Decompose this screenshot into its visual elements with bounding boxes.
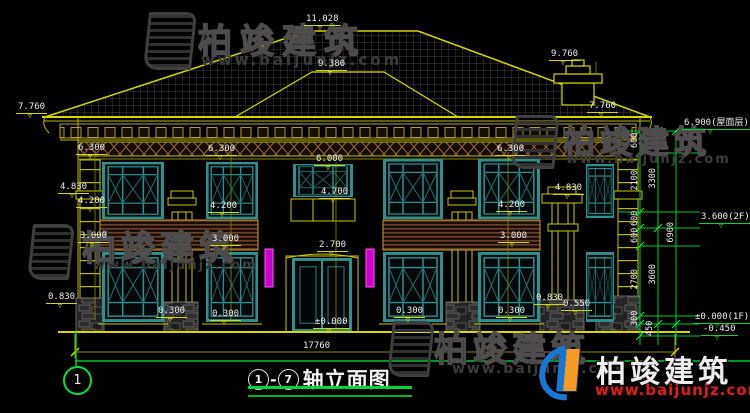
level-label: 4.830: [553, 184, 584, 195]
brand-logo-url: www.baijunjz.com: [595, 381, 750, 399]
overall-dim-label: 17760: [303, 342, 330, 351]
level-label: 6.000: [314, 155, 345, 166]
watermark-building-icon: [143, 12, 197, 70]
watermark-url: www.baijunjz.com: [201, 51, 402, 69]
vertical-dim-label: 3600: [649, 256, 658, 292]
cornice: [42, 117, 652, 159]
vertical-dim-label: 600: [631, 122, 640, 158]
level-label: 3.000: [78, 232, 109, 243]
level-label: 0.830: [46, 293, 77, 304]
logo-building: [556, 349, 580, 391]
level-label: 4.200: [208, 202, 239, 213]
vertical-dim-label: 2100: [631, 162, 640, 198]
watermark-url: www.baijunjz.com: [93, 258, 258, 273]
level-label: 4.200: [496, 201, 527, 212]
axis-bubble-1: 1: [63, 366, 92, 395]
level-label: 4.700: [319, 188, 350, 199]
brand-logo-icon: [539, 344, 593, 402]
cad-elevation-screenshot: 柏竣建筑 www.baijunjz.com 柏竣建筑 www.baijunjz.…: [0, 0, 750, 413]
level-label: 0.300: [156, 307, 187, 318]
watermark-building-icon: [510, 115, 560, 169]
vertical-dim-label: 3300: [649, 160, 658, 196]
right-level-label: 6.900(屋面层): [682, 119, 750, 130]
title-underline: [248, 386, 412, 397]
right-level-label: ±0.000(1F): [693, 313, 750, 324]
right-level-label: -0.450: [701, 325, 738, 336]
vertical-dim-label: 6900: [667, 214, 676, 250]
watermark-building-icon: [387, 321, 435, 377]
level-label: 7.760: [16, 103, 47, 114]
vertical-dim-label: 300: [631, 300, 640, 336]
vertical-dim-label: 450: [646, 310, 655, 346]
level-label: 9.760: [549, 50, 580, 61]
watermark-building-icon: [27, 224, 75, 280]
axis-bubble-number: 1: [73, 373, 81, 388]
magenta-pilaster-right: [366, 249, 374, 287]
level-label: 7.760: [587, 102, 618, 113]
level-label: 0.300: [394, 307, 425, 318]
level-label: 6.300: [206, 145, 237, 156]
level-label: 4.830: [58, 183, 89, 194]
level-label: 6.300: [76, 144, 107, 155]
vertical-dim-label: 2700: [631, 261, 640, 297]
level-label: 0.300: [496, 307, 527, 318]
level-label: 2.700: [317, 241, 348, 252]
level-label: 11.028: [304, 15, 341, 26]
level-label: 0.550: [561, 300, 592, 311]
level-label: 3.000: [498, 232, 529, 243]
level-label: 3.000: [210, 235, 241, 246]
level-label: 4.200: [76, 197, 107, 208]
level-label: 6.300: [495, 145, 526, 156]
magenta-pilaster-left: [265, 249, 273, 287]
right-level-label: 3.600(2F): [699, 213, 750, 224]
vertical-dim-label: 600: [631, 217, 640, 253]
level-label: ±0.000: [313, 318, 350, 329]
level-label: 0.300: [210, 310, 241, 321]
level-label: 9.380: [316, 60, 347, 71]
